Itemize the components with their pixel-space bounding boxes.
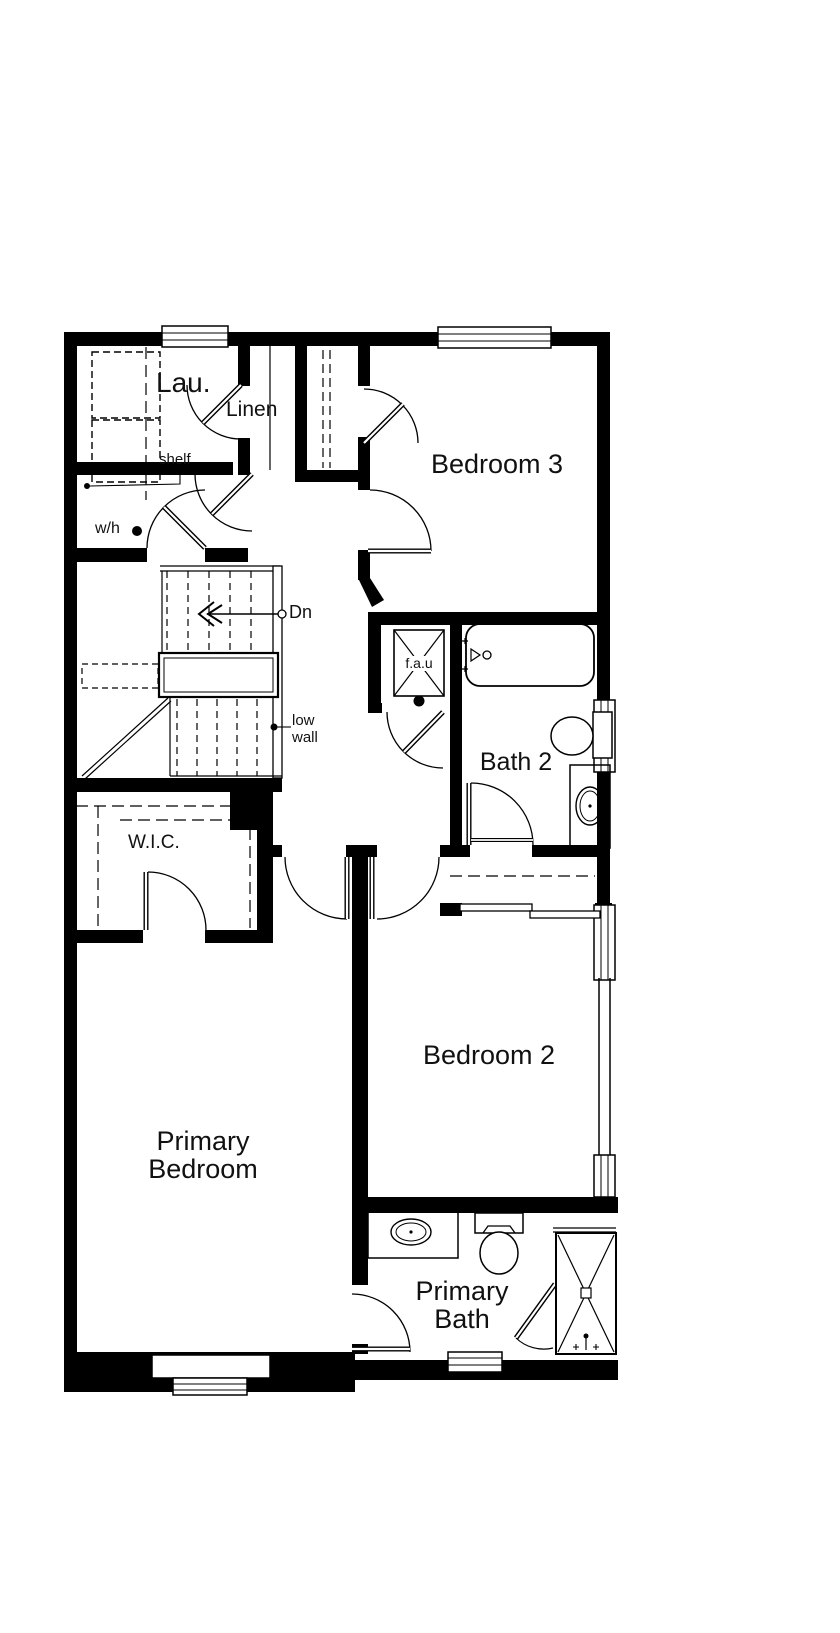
door-bedroom3-closet: [364, 389, 418, 443]
stair-landing: [159, 653, 278, 697]
laundry-label: Lau.: [156, 368, 211, 397]
fau-label: f.a.u: [403, 656, 434, 671]
door-fau: [387, 712, 443, 768]
primary-bath-label: Primary Bath: [416, 1277, 509, 1333]
floor-plan-drawing: [0, 0, 840, 1633]
closet-slider-right: [530, 911, 600, 918]
sink-primary-icon: [368, 1208, 458, 1258]
primary-bedroom-line1: Primary: [148, 1127, 258, 1155]
low-wall-line2: wall: [292, 729, 318, 746]
window-bedroom3: [438, 327, 551, 348]
primary-bedroom-label: Primary Bedroom: [148, 1127, 258, 1183]
primary-bedroom-line2: Bedroom: [148, 1155, 258, 1183]
door-bedroom3: [368, 490, 431, 551]
wic-rod-shelf: [76, 806, 256, 928]
bathtub-icon: [462, 624, 594, 686]
window-primary-bath: [448, 1352, 502, 1372]
stair-break-line: [82, 698, 168, 776]
bedroom2-label: Bedroom 2: [423, 1041, 555, 1069]
primary-bath-line2: Bath: [416, 1305, 509, 1333]
windows: [152, 326, 615, 1395]
low-wall-line1: low: [292, 712, 318, 729]
window-laundry: [162, 326, 228, 347]
window-bedroom2-lower: [594, 1155, 615, 1197]
door-wic: [146, 872, 206, 930]
low-wall-label: low wall: [292, 712, 318, 746]
stair-treads-lower: [177, 699, 257, 776]
window-wall-bedroom2: [599, 978, 610, 1160]
door-primary-bedroom: [285, 857, 347, 919]
washer-dryer-icon: [92, 347, 160, 500]
water-heater-icon: [132, 526, 142, 536]
toilet-bath2-icon: [551, 712, 612, 758]
toilet-primary-icon: [475, 1213, 523, 1274]
door-bath2: [469, 783, 533, 845]
door-linen: [195, 474, 252, 531]
shower-icon: [553, 1228, 616, 1354]
stairs-down-label: Dn: [289, 603, 312, 622]
walls: [64, 332, 618, 1392]
stair-treads-upper: [167, 571, 251, 653]
door-primary-bath: [352, 1294, 410, 1352]
water-heater-label: w/h: [95, 521, 120, 538]
door-bedroom2: [372, 857, 439, 919]
floor-plan: Lau. Linen shelf w/h Dn low wall f.a.u B…: [0, 0, 840, 1633]
bedroom3-closet-rod: [323, 350, 330, 468]
stairs: [82, 566, 282, 779]
door-water-heater: [147, 490, 205, 548]
primary-bath-line1: Primary: [416, 1277, 509, 1305]
bedroom3-label: Bedroom 3: [431, 450, 563, 478]
door-shower: [516, 1284, 555, 1349]
linen-label: Linen: [226, 399, 277, 421]
closet-slider-left: [460, 904, 532, 911]
wic-label: W.I.C.: [128, 833, 180, 853]
bath2-label: Bath 2: [480, 749, 552, 775]
stair-side-shelf: [82, 664, 158, 688]
shelf-label: shelf: [159, 452, 191, 468]
